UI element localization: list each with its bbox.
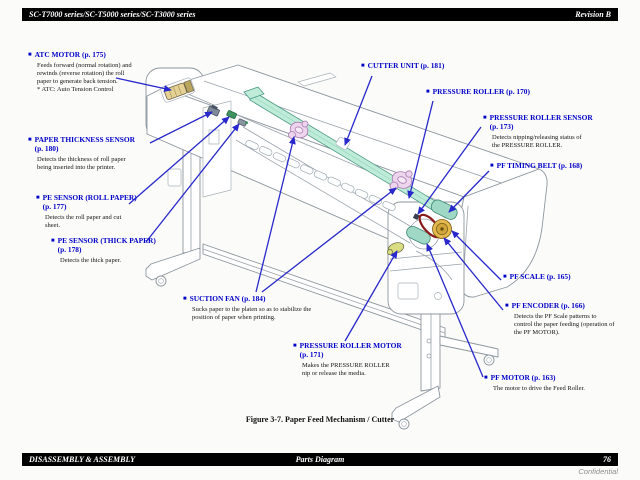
bullet-square-icon: ■ (293, 342, 297, 360)
bullet-square-icon: ■ (484, 374, 488, 383)
callout-title: PRESSURE ROLLER SENSOR (p. 173) (490, 114, 593, 132)
bullet-square-icon: ■ (426, 88, 430, 97)
bullet-square-icon: ■ (505, 302, 509, 311)
callout-body: The motor to drive the Feed Roller. (493, 385, 624, 393)
callout-title: ATC MOTOR (p. 175) (35, 51, 106, 60)
callout-title: PF ENCODER (p. 166) (512, 302, 585, 311)
footer-page-number: 76 (344, 453, 611, 466)
callout-pe-sensor-thick-paper: ■PE SENSOR (THICK PAPER) (p. 178) Detect… (51, 237, 191, 265)
callout-body: Detects nipping/releasing status of the … (492, 134, 623, 150)
footer-section: DISASSEMBLY & ASSEMBLY (29, 453, 296, 466)
callout-title: SUCTION FAN (p. 184) (190, 295, 266, 304)
callout-body: Detects the thick paper. (60, 257, 191, 265)
manual-page: { "page": { "header": {"left": "SC-T7000… (0, 0, 640, 480)
footer-chapter: Parts Diagram (296, 453, 345, 466)
callout-pe-sensor-roll-paper: ■PE SENSOR (ROLL PAPER) (p. 177) Detects… (36, 194, 176, 230)
callout-title: PRESSURE ROLLER MOTOR (p. 171) (300, 342, 402, 360)
callout-title: PE SENSOR (ROLL PAPER) (p. 177) (43, 194, 137, 212)
callout-body: Detects the thickness of roll paper bein… (37, 156, 173, 172)
footer-bar: DISASSEMBLY & ASSEMBLY Parts Diagram 76 (22, 453, 618, 466)
pf-scale-disc (433, 220, 452, 239)
callout-pressure-roller-motor: ■PRESSURE ROLLER MOTOR (p. 171) Makes th… (293, 342, 438, 378)
callout-pf-encoder: ■PF ENCODER (p. 166) Detects the PF Scal… (505, 302, 637, 337)
bullet-square-icon: ■ (483, 114, 487, 132)
callout-title: PRESSURE ROLLER (p. 170) (433, 88, 530, 97)
callout-pf-motor: ■PF MOTOR (p. 163) The motor to drive th… (484, 374, 624, 393)
callout-body: Makes the PRESSURE ROLLER nip or release… (302, 362, 438, 378)
callout-suction-fan: ■SUCTION FAN (p. 184) Sucks paper to the… (183, 295, 383, 322)
callout-body: Feeds forward (normal rotation) and rewi… (37, 62, 168, 95)
callout-body: Detects the PF Scale patterns to control… (514, 313, 637, 337)
bullet-square-icon: ■ (28, 136, 32, 154)
callout-cutter-unit: ■CUTTER UNIT (p. 181) (361, 62, 481, 71)
bullet-square-icon: ■ (51, 237, 55, 255)
callout-body: Detects the roll paper and cut sheet. (45, 214, 176, 230)
callout-pf-timing-belt: ■PF TIMING BELT (p. 168) (490, 162, 620, 171)
callout-pressure-roller-sensor: ■PRESSURE ROLLER SENSOR (p. 173) Detects… (483, 114, 623, 150)
bullet-square-icon: ■ (183, 295, 187, 304)
callout-pressure-roller: ■PRESSURE ROLLER (p. 170) (426, 88, 571, 97)
confidential-watermark: Confidential (578, 467, 618, 476)
bullet-square-icon: ■ (28, 51, 32, 60)
bullet-square-icon: ■ (503, 273, 507, 282)
bullet-square-icon: ■ (490, 162, 494, 171)
callout-title: PF SCALE (p. 165) (510, 273, 571, 282)
callout-title: PF MOTOR (p. 163) (491, 374, 556, 383)
callout-title: PAPER THICKNESS SENSOR (p. 180) (35, 136, 135, 154)
figure-caption: Figure 3-7. Paper Feed Mechanism / Cutte… (0, 415, 640, 424)
callout-paper-thickness-sensor: ■PAPER THICKNESS SENSOR (p. 180) Detects… (28, 136, 173, 172)
callout-pf-scale: ■PF SCALE (p. 165) (503, 273, 613, 282)
callout-title: PF TIMING BELT (p. 168) (497, 162, 583, 171)
callout-atc-motor: ■ATC MOTOR (p. 175) Feeds forward (norma… (28, 51, 168, 95)
bullet-square-icon: ■ (361, 62, 365, 71)
printer-body (146, 65, 547, 314)
callout-title: CUTTER UNIT (p. 181) (368, 62, 445, 71)
callout-title: PE SENSOR (THICK PAPER) (p. 178) (58, 237, 156, 255)
callout-body: Sucks paper to the platen so as to stabi… (192, 306, 383, 322)
bullet-square-icon: ■ (36, 194, 40, 212)
